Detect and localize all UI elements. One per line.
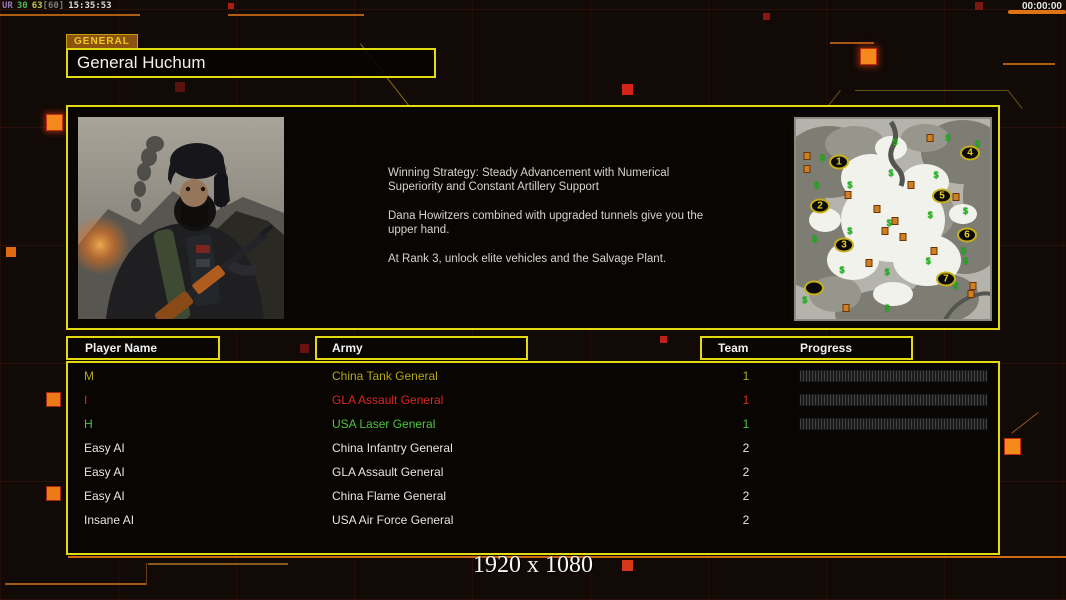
supply-marker-icon: $ bbox=[892, 137, 897, 147]
empty-position-marker bbox=[804, 281, 824, 296]
general-portrait bbox=[78, 117, 284, 319]
strategy-text: Winning Strategy: Steady Advancement wit… bbox=[388, 166, 706, 281]
start-position-marker: 4 bbox=[960, 145, 980, 160]
progress-bar bbox=[799, 370, 988, 383]
army-cell: China Flame General bbox=[332, 489, 446, 503]
army-cell: GLA Assault General bbox=[332, 465, 443, 479]
team-cell: 2 bbox=[737, 513, 755, 527]
army-cell: China Infantry General bbox=[332, 441, 453, 455]
fps-segment: UR bbox=[2, 1, 13, 11]
decor-square bbox=[228, 3, 234, 9]
start-position-marker: 6 bbox=[957, 227, 977, 242]
decor-square bbox=[300, 344, 309, 353]
supply-marker-icon: $ bbox=[926, 256, 931, 266]
army-cell: GLA Assault General bbox=[332, 393, 443, 407]
minimap: $$$$$$$$$$$$$$$$$$$$$1234567 bbox=[794, 117, 992, 321]
supply-marker-icon: $ bbox=[885, 303, 890, 313]
progress-bar bbox=[799, 394, 988, 407]
decor-square bbox=[175, 82, 185, 92]
table-row: Easy AIChina Flame General2 bbox=[68, 484, 998, 508]
decor-square bbox=[622, 560, 633, 571]
supply-marker-icon: $ bbox=[928, 210, 933, 220]
decor-square bbox=[46, 114, 63, 131]
progress-bar bbox=[799, 418, 988, 431]
player-name-cell: I bbox=[84, 393, 87, 407]
fps-segment: [60] bbox=[43, 1, 65, 11]
match-timer: 00:00:00 bbox=[1022, 1, 1062, 12]
roster-rows: MChina Tank General1IGLA Assault General… bbox=[68, 364, 998, 532]
team-cell: 2 bbox=[737, 489, 755, 503]
strategy-paragraph: Winning Strategy: Steady Advancement wit… bbox=[388, 166, 706, 194]
team-cell: 1 bbox=[737, 393, 755, 407]
fps-segment: 30 bbox=[17, 1, 28, 11]
player-name-cell: Insane AI bbox=[84, 513, 134, 527]
column-header-army: Army bbox=[315, 336, 528, 360]
structure-marker-icon bbox=[931, 247, 938, 255]
supply-marker-icon: $ bbox=[802, 295, 807, 305]
start-position-marker: 1 bbox=[829, 155, 849, 170]
player-name-cell: M bbox=[84, 369, 94, 383]
start-position-marker: 7 bbox=[936, 271, 956, 286]
table-row: Insane AIUSA Air Force General2 bbox=[68, 508, 998, 532]
army-cell: USA Laser General bbox=[332, 417, 435, 431]
supply-marker-icon: $ bbox=[963, 206, 968, 216]
decor-square bbox=[1004, 438, 1021, 455]
structure-marker-icon bbox=[803, 165, 810, 173]
player-name-cell: Easy AI bbox=[84, 441, 125, 455]
team-cell: 2 bbox=[737, 441, 755, 455]
supply-marker-icon: $ bbox=[945, 133, 950, 143]
strategy-paragraph: Dana Howitzers combined with upgraded tu… bbox=[388, 209, 706, 237]
team-cell: 1 bbox=[737, 417, 755, 431]
decor-line bbox=[228, 14, 364, 16]
decor-square bbox=[46, 486, 61, 501]
table-row: IGLA Assault General1 bbox=[68, 388, 998, 412]
structure-marker-icon bbox=[874, 205, 881, 213]
minimap-markers: $$$$$$$$$$$$$$$$$$$$$1234567 bbox=[795, 118, 991, 320]
decor-line bbox=[1007, 89, 1023, 109]
supply-marker-icon: $ bbox=[840, 265, 845, 275]
supply-marker-icon: $ bbox=[934, 170, 939, 180]
structure-marker-icon bbox=[866, 259, 873, 267]
supply-marker-icon: $ bbox=[820, 153, 825, 163]
decor-line bbox=[148, 563, 288, 565]
supply-marker-icon: $ bbox=[814, 180, 819, 190]
decor-square bbox=[860, 48, 877, 65]
table-row: HUSA Laser General1 bbox=[68, 412, 998, 436]
structure-marker-icon bbox=[952, 193, 959, 201]
decor-square bbox=[763, 13, 770, 20]
supply-marker-icon: $ bbox=[847, 180, 852, 190]
strategy-paragraph: At Rank 3, unlock elite vehicles and the… bbox=[388, 252, 706, 266]
start-position-marker: 5 bbox=[932, 188, 952, 203]
structure-marker-icon bbox=[907, 181, 914, 189]
supply-marker-icon: $ bbox=[963, 256, 968, 266]
decor-square bbox=[975, 2, 983, 10]
table-row: Easy AIGLA Assault General2 bbox=[68, 460, 998, 484]
screen: UR3063[60]15:35:53 00:00:00 GENERAL Gene… bbox=[0, 0, 1066, 600]
decor-square bbox=[46, 392, 61, 407]
column-header-player-name: Player Name bbox=[66, 336, 220, 360]
structure-marker-icon bbox=[970, 282, 977, 290]
column-header-team-progress: Team Progress bbox=[700, 336, 913, 360]
fps-segment: 63 bbox=[32, 1, 43, 11]
supply-marker-icon: $ bbox=[889, 168, 894, 178]
general-tab: GENERAL bbox=[66, 34, 138, 48]
fps-segment: 15:35:53 bbox=[68, 1, 111, 11]
table-row: MChina Tank General1 bbox=[68, 364, 998, 388]
army-cell: USA Air Force General bbox=[332, 513, 453, 527]
structure-marker-icon bbox=[882, 227, 889, 235]
player-name-cell: Easy AI bbox=[84, 489, 125, 503]
supply-marker-icon: $ bbox=[961, 246, 966, 256]
player-name-cell: H bbox=[84, 417, 93, 431]
structure-marker-icon bbox=[968, 290, 975, 298]
structure-marker-icon bbox=[927, 134, 934, 142]
decor-line bbox=[5, 583, 147, 585]
structure-marker-icon bbox=[842, 304, 849, 312]
structure-marker-icon bbox=[899, 233, 906, 241]
decor-line bbox=[146, 563, 147, 585]
structure-marker-icon bbox=[891, 217, 898, 225]
structure-marker-icon bbox=[803, 152, 810, 160]
army-cell: China Tank General bbox=[332, 369, 438, 383]
start-position-marker: 2 bbox=[810, 199, 830, 214]
player-name-cell: Easy AI bbox=[84, 465, 125, 479]
resolution-label: 1920 x 1080 bbox=[473, 552, 593, 579]
team-cell: 2 bbox=[737, 465, 755, 479]
decor-line bbox=[855, 90, 1007, 91]
start-position-marker: 3 bbox=[834, 238, 854, 253]
fps-overlay: UR3063[60]15:35:53 bbox=[2, 1, 116, 11]
decor-square bbox=[660, 336, 667, 343]
structure-marker-icon bbox=[844, 191, 851, 199]
decor-line bbox=[0, 14, 140, 16]
decor-square bbox=[622, 84, 633, 95]
supply-marker-icon: $ bbox=[847, 226, 852, 236]
supply-marker-icon: $ bbox=[812, 234, 817, 244]
supply-marker-icon: $ bbox=[885, 267, 890, 277]
page-title: General Huchum bbox=[66, 48, 436, 78]
portrait-image bbox=[78, 117, 284, 319]
decor-line bbox=[830, 42, 874, 44]
decor-line bbox=[1011, 412, 1038, 434]
table-row: Easy AIChina Infantry General2 bbox=[68, 436, 998, 460]
decor-line bbox=[1003, 63, 1055, 65]
player-roster-panel: MChina Tank General1IGLA Assault General… bbox=[66, 361, 1000, 555]
column-header-team: Team bbox=[718, 338, 748, 358]
team-cell: 1 bbox=[737, 369, 755, 383]
decor-square bbox=[6, 247, 16, 257]
column-header-progress: Progress bbox=[800, 338, 852, 358]
